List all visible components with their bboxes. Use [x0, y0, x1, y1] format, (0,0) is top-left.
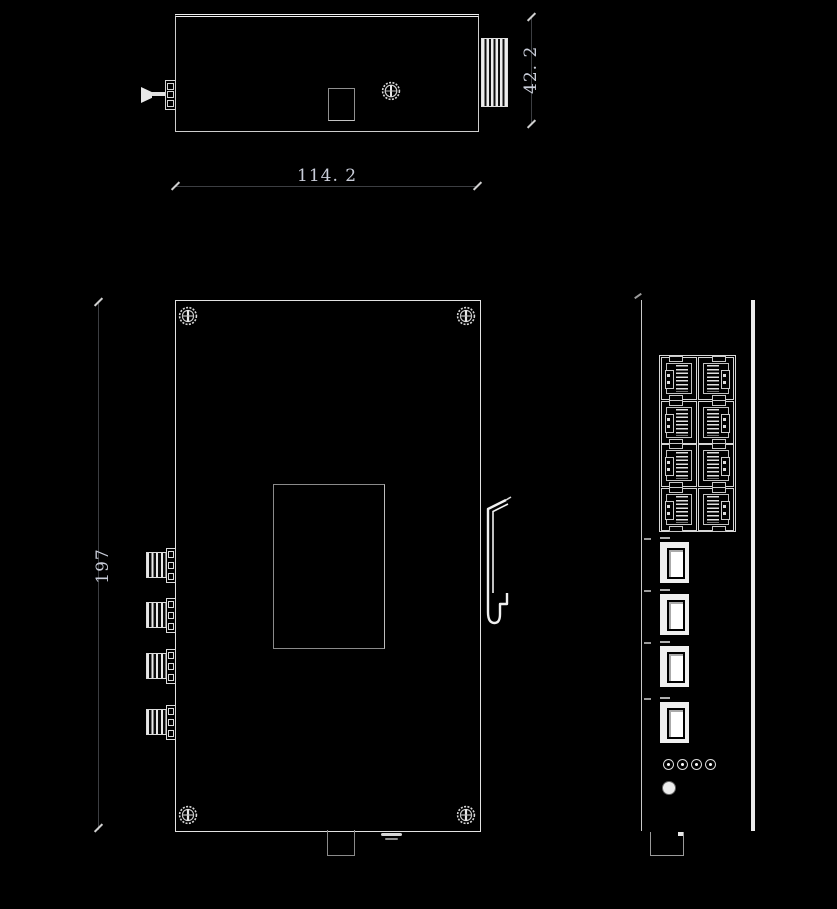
side-panel-edge-tick	[634, 293, 642, 299]
corner-screw-icon	[177, 305, 199, 327]
dimension-label-depth: 42. 2	[521, 48, 541, 94]
fiber-slot-dash	[644, 538, 651, 540]
top-view-cutout	[328, 88, 355, 121]
terminal-hole	[168, 663, 174, 670]
rj45-nub	[712, 443, 726, 449]
rj45-latch	[665, 370, 674, 389]
lug-hole	[167, 100, 174, 107]
rj45-pins	[707, 496, 719, 523]
terminal-hole	[168, 674, 174, 681]
side-panel-right-bar	[751, 300, 755, 831]
ground-lug-bracket	[165, 80, 176, 110]
rj45-nub	[712, 400, 726, 406]
terminal-stripes	[146, 709, 167, 735]
rj45-pins	[676, 452, 688, 479]
rj45-port	[698, 488, 734, 531]
mechanical-drawing-canvas: 114. 2 42. 2	[0, 0, 837, 909]
fiber-slot-hole	[667, 548, 685, 579]
terminal-bracket	[166, 598, 176, 633]
terminal-bracket	[166, 705, 176, 740]
rj45-port	[661, 401, 697, 444]
rj45-nub	[669, 443, 683, 449]
led-indicator-icon	[677, 759, 688, 770]
terminal-hole	[168, 573, 174, 580]
rj45-pins	[707, 409, 719, 436]
terminal-stripes	[146, 653, 167, 679]
rj45-port	[698, 444, 734, 487]
rj45-port	[661, 488, 697, 531]
dimension-line-width	[176, 186, 478, 187]
rj45-nub	[669, 400, 683, 406]
side-panel-foot-nub	[678, 832, 683, 836]
corner-screw-icon	[455, 804, 477, 826]
terminal-hole	[168, 623, 174, 630]
fiber-slot-hole	[667, 708, 685, 739]
terminal-stripes	[146, 602, 167, 628]
fiber-slot-dash	[644, 590, 651, 592]
rj45-latch	[665, 414, 674, 433]
fiber-slot-dash	[644, 698, 651, 700]
terminal-connector	[146, 598, 176, 631]
rj45-port	[661, 357, 697, 400]
rj45-nub	[712, 487, 726, 493]
fiber-slot	[660, 542, 689, 583]
terminal-connector	[146, 705, 176, 738]
dimension-label-width: 114. 2	[297, 166, 357, 186]
rj45-pins	[676, 409, 688, 436]
terminal-hole	[168, 601, 174, 608]
corner-screw-icon	[177, 804, 199, 826]
led-indicator-icon	[705, 759, 716, 770]
terminal-stripes	[146, 552, 167, 578]
ground-screw-icon	[141, 87, 152, 103]
fiber-slot-tick	[660, 537, 670, 539]
rj45-latch	[721, 414, 730, 433]
rj45-nub	[669, 356, 683, 362]
rj45-port	[661, 444, 697, 487]
dimension-tick	[473, 181, 482, 190]
terminal-hole	[168, 551, 174, 558]
foot-slot	[381, 833, 402, 836]
fiber-slot-tick	[660, 589, 670, 591]
rj45-latch	[721, 457, 730, 476]
fiber-slot-dash	[644, 642, 651, 644]
din-rail-clip-icon	[479, 494, 519, 639]
rj45-pins	[676, 365, 688, 392]
dimension-tick	[527, 119, 536, 128]
knurled-screw-icon	[380, 80, 402, 102]
terminal-hole	[168, 612, 174, 619]
terminal-hole	[168, 652, 174, 659]
lug-hole	[167, 91, 174, 98]
fiber-slot	[660, 594, 689, 635]
fiber-slot-tick	[660, 697, 670, 699]
terminal-connector	[146, 649, 176, 682]
din-rail-block-top	[481, 38, 508, 107]
fiber-slot	[660, 646, 689, 687]
rj45-port	[698, 401, 734, 444]
rj45-latch	[721, 501, 730, 520]
fiber-slot-hole	[667, 600, 685, 631]
led-indicator-icon	[691, 759, 702, 770]
terminal-connector	[146, 548, 176, 581]
terminal-bracket	[166, 548, 176, 583]
rj45-latch	[665, 501, 674, 520]
fiber-slot	[660, 702, 689, 743]
rj45-pins	[676, 496, 688, 523]
terminal-hole	[168, 708, 174, 715]
terminal-bracket	[166, 649, 176, 684]
terminal-hole	[168, 730, 174, 737]
rj45-nub	[712, 526, 726, 532]
fiber-slot-tick	[660, 641, 670, 643]
top-view-outline	[175, 14, 479, 132]
fiber-slot-hole	[667, 652, 685, 683]
corner-screw-icon	[455, 305, 477, 327]
terminal-hole	[168, 719, 174, 726]
rj45-nub	[669, 526, 683, 532]
side-panel-left-edge	[641, 300, 642, 831]
rj45-latch	[721, 370, 730, 389]
mounting-foot	[327, 830, 355, 856]
dimension-label-height: 197	[93, 543, 113, 589]
power-led-icon	[662, 781, 676, 795]
lug-hole	[167, 83, 174, 90]
rj45-nub	[712, 356, 726, 362]
terminal-hole	[168, 562, 174, 569]
led-indicator-icon	[663, 759, 674, 770]
dimension-tick	[94, 823, 103, 832]
ground-screw-shaft	[152, 92, 165, 96]
foot-slot-shadow	[385, 838, 398, 840]
rj45-nub	[669, 487, 683, 493]
rj45-port	[698, 357, 734, 400]
rj45-latch	[665, 457, 674, 476]
front-view-cutout	[273, 484, 385, 649]
rj45-pins	[707, 452, 719, 479]
rj45-pins	[707, 365, 719, 392]
